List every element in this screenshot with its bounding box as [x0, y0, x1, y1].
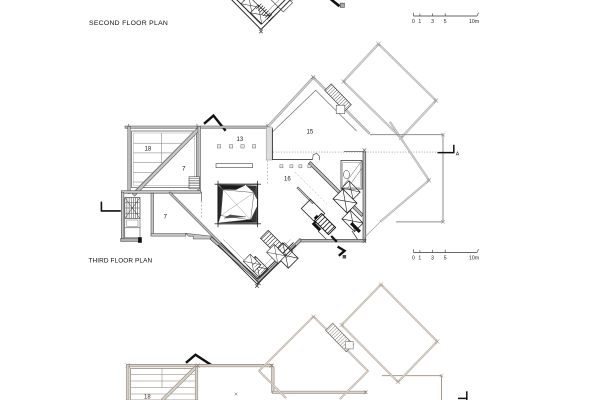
svg-text:16: 16 — [284, 177, 291, 183]
svg-text:7: 7 — [182, 166, 186, 173]
svg-text:5: 5 — [444, 256, 447, 262]
svg-text:0: 0 — [412, 256, 415, 262]
svg-text:13: 13 — [237, 137, 244, 143]
svg-text:5: 5 — [444, 19, 447, 25]
svg-text:1: 1 — [418, 256, 421, 262]
svg-text:10m: 10m — [469, 256, 479, 262]
svg-text:SECOND FLOOR PLAN: SECOND FLOOR PLAN — [89, 20, 168, 27]
svg-text:7: 7 — [164, 214, 168, 221]
svg-text:15: 15 — [307, 130, 314, 136]
svg-text:3: 3 — [431, 19, 434, 25]
svg-text:THIRD FLOOR PLAN: THIRD FLOOR PLAN — [89, 257, 153, 264]
svg-text:0: 0 — [412, 19, 415, 25]
svg-text:18: 18 — [145, 147, 152, 153]
svg-text:1: 1 — [418, 19, 421, 25]
svg-text:10m: 10m — [469, 19, 479, 25]
svg-text:3: 3 — [431, 256, 434, 262]
svg-text:A: A — [456, 152, 460, 158]
svg-text:18: 18 — [144, 395, 151, 400]
